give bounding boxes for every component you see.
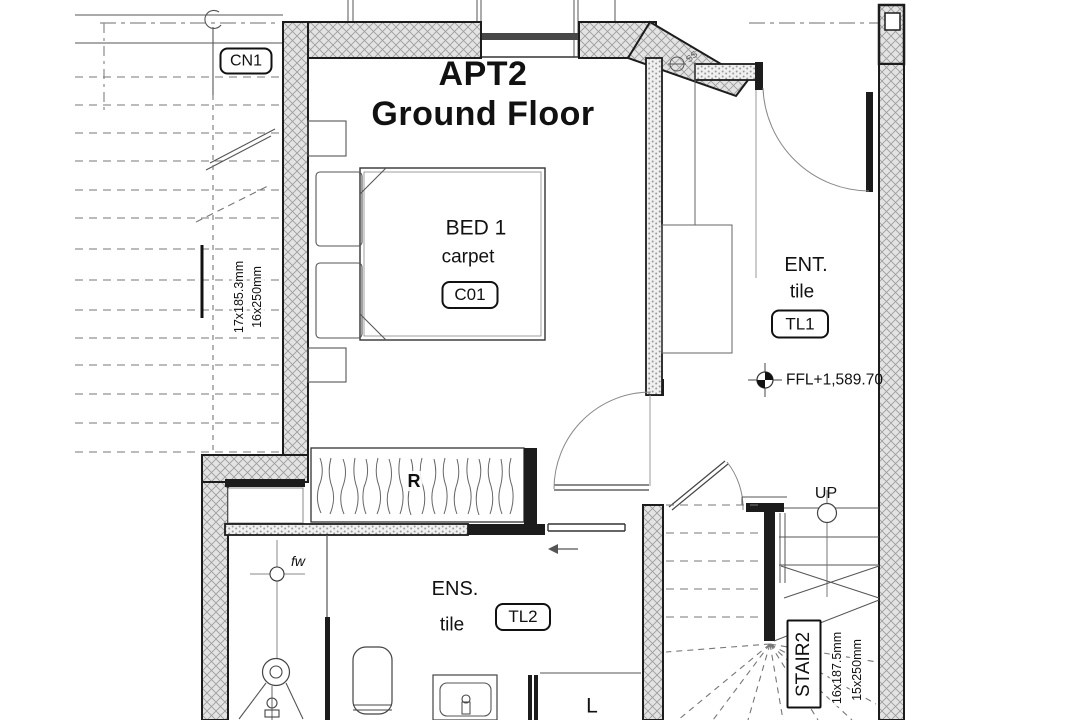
- stair2-treads: [666, 490, 879, 720]
- room-label-bed1: BED 1: [446, 218, 507, 239]
- stair2-dim-1: 16x187.5mm: [830, 630, 845, 706]
- code-text-tl1: TL1: [785, 314, 814, 334]
- room-label-ent: ENT.: [784, 255, 827, 275]
- finish-label-bed1: carpet: [442, 248, 495, 267]
- apt-title: APT2: [439, 57, 528, 91]
- entrance-door: [755, 62, 873, 192]
- ent-closet: [662, 57, 756, 353]
- cn1-text: CN1: [230, 52, 262, 70]
- code-badge-c01: C01: [442, 281, 499, 309]
- floorplan-canvas: APT2 Ground Floor BED 1 carpet C01 ENT. …: [0, 0, 1080, 720]
- finish-label-ent: tile: [790, 283, 814, 302]
- stair2-badge: STAIR2: [787, 620, 822, 709]
- bed-furniture: [308, 121, 545, 382]
- stair-door: [669, 461, 743, 510]
- bed1-door: [554, 392, 651, 490]
- cn1-badge: CN1: [220, 48, 273, 75]
- wardrobe: [311, 448, 537, 524]
- slide-direction-arrow: [548, 544, 558, 554]
- room-label-ens: ENS.: [432, 579, 479, 599]
- wall-pocket: [468, 524, 545, 535]
- ens-sliding-door: [548, 524, 625, 549]
- linen-closet: [528, 673, 641, 720]
- linen-label: L: [586, 696, 598, 717]
- stair2-dim-2: 15x250mm: [850, 637, 865, 703]
- finish-label-ens: tile: [440, 616, 464, 635]
- code-badge-tl1: TL1: [771, 310, 829, 339]
- ffl-marker: [748, 363, 782, 397]
- robe-label: R: [406, 471, 423, 491]
- stair2-text: STAIR2: [793, 631, 815, 696]
- code-text-c01: C01: [454, 285, 485, 305]
- cn1-dim-1: 17x185.3mm: [232, 259, 247, 335]
- code-badge-tl2: TL2: [495, 603, 551, 631]
- wall-nib: [225, 479, 305, 487]
- up-label: UP: [815, 486, 837, 502]
- cn1-dim-2: 16x250mm: [250, 264, 265, 330]
- fw-label: fw: [291, 554, 305, 568]
- code-text-tl2: TL2: [508, 607, 537, 627]
- cn1-stair-treads: [75, 10, 283, 458]
- ffl-annotation: FFL+1,589.70: [786, 372, 883, 388]
- floor-title: Ground Floor: [371, 97, 594, 131]
